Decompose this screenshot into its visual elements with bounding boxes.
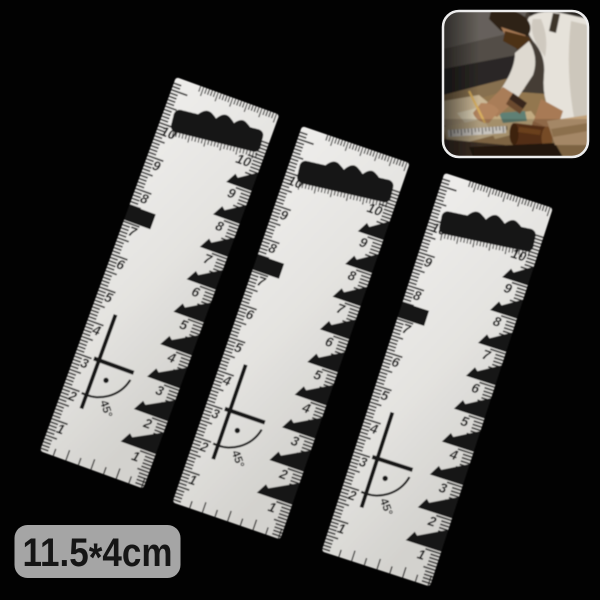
svg-text:11.5*4cm: 11.5*4cm <box>23 531 173 580</box>
